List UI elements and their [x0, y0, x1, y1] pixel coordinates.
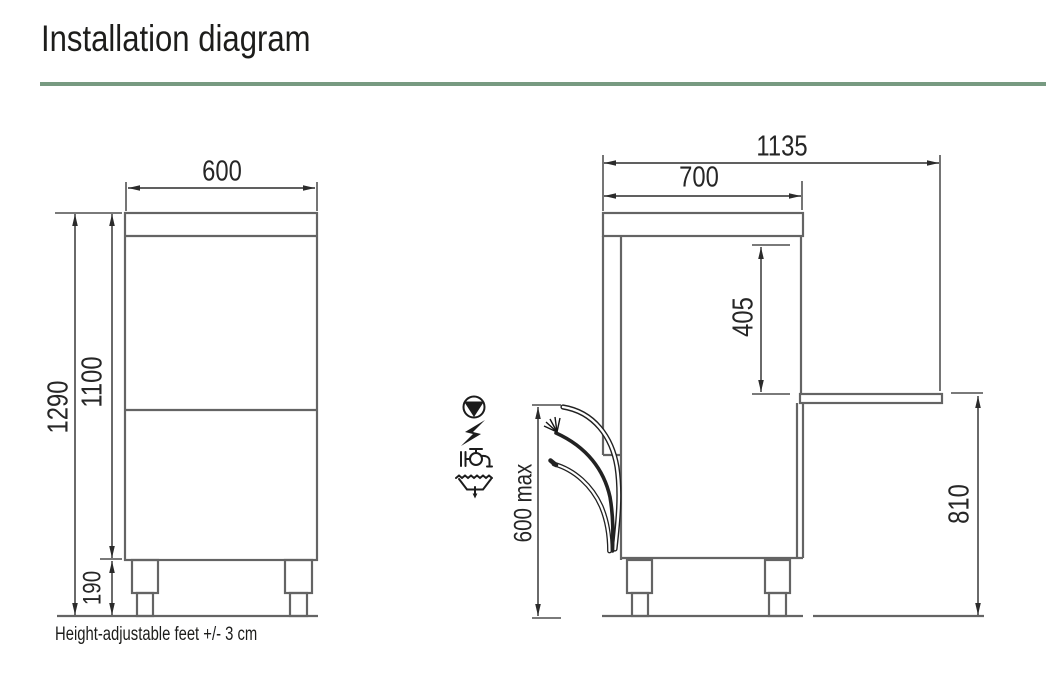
dim-front-width-label: 600: [202, 156, 242, 189]
dim-front-total-height-label: 1290: [43, 381, 76, 434]
feet-adjustment-footnote: Height-adjustable feet +/- 3 cm: [55, 624, 257, 646]
connection-hoses: [544, 407, 619, 551]
drain-icon: [456, 476, 492, 499]
dim-side-total-depth-label: 1135: [756, 131, 807, 164]
connection-icons: [456, 397, 492, 499]
side-view-dimensions: [532, 155, 983, 618]
dim-front-body-height-label: 1100: [77, 356, 110, 407]
drain-pump-icon: [464, 397, 485, 418]
side-view: [602, 213, 984, 616]
side-view-feet: [627, 560, 790, 616]
installation-diagram-page: Installation diagram: [0, 0, 1063, 678]
front-view: [57, 213, 318, 616]
worktop-shelf: [800, 394, 942, 403]
dim-connections-max-height-label: 600 max: [510, 464, 539, 543]
front-view-feet: [132, 560, 312, 616]
water-supply-icon: [461, 449, 492, 467]
dim-worktop-height-label: 810: [944, 484, 977, 524]
dim-side-opening-height-label: 405: [728, 297, 761, 337]
cable-frayed-end: [544, 417, 560, 432]
dim-front-feet-height-label: 190: [79, 571, 108, 605]
dim-side-body-depth-label: 700: [679, 162, 719, 195]
drain-hose: [563, 407, 619, 549]
electrical-icon: [461, 420, 485, 446]
installation-drawing: [0, 0, 1063, 678]
power-cable: [556, 433, 613, 551]
